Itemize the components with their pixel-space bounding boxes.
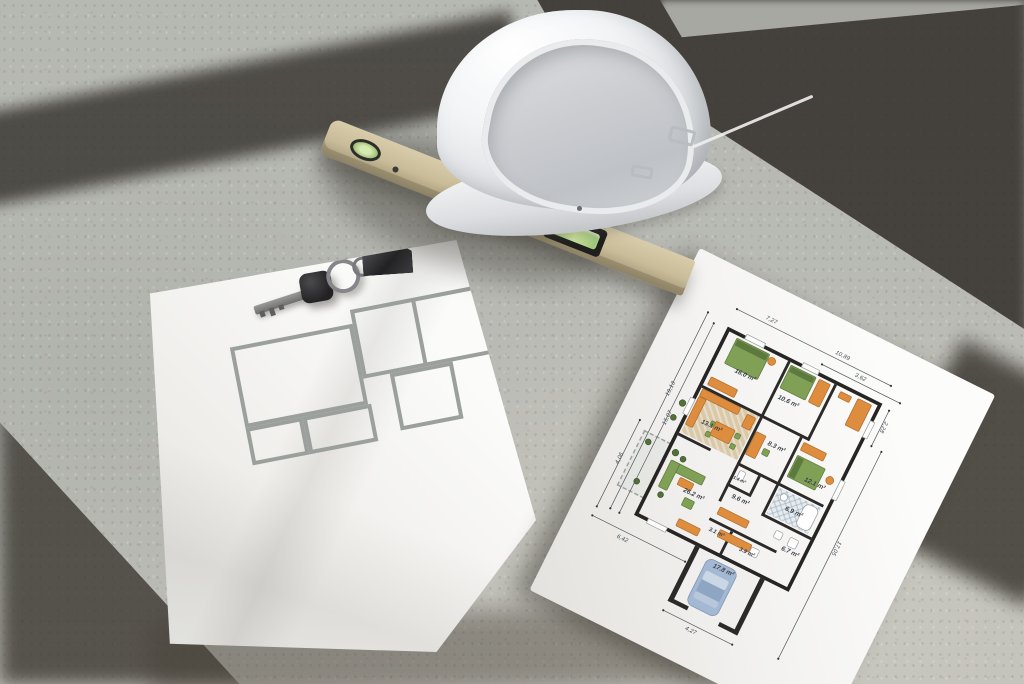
hard-hat xyxy=(425,10,725,240)
level-hanging-hole xyxy=(392,166,400,174)
dimension-label: 4,06 xyxy=(614,451,625,465)
dimension-label: 17,05 xyxy=(830,540,843,557)
dimension-label: 10,89 xyxy=(834,349,851,362)
hard-hat-vent-hole xyxy=(577,206,582,211)
key-tooth xyxy=(278,304,284,310)
dimension-label: 6,42 xyxy=(616,533,630,544)
sketch-room xyxy=(390,361,464,430)
construction-scene: 16.0 m² 10.6 m² 13.1 m² 8.3 m² 12.1 m² 2… xyxy=(0,0,1024,684)
level-bubble-vial-round xyxy=(347,135,384,165)
dimension-label: 2,28 xyxy=(878,421,889,435)
floor-plan: 16.0 m² 10.6 m² 13.1 m² 8.3 m² 12.1 m² 2… xyxy=(631,327,882,597)
dimension-label: 19,13 xyxy=(664,380,677,397)
